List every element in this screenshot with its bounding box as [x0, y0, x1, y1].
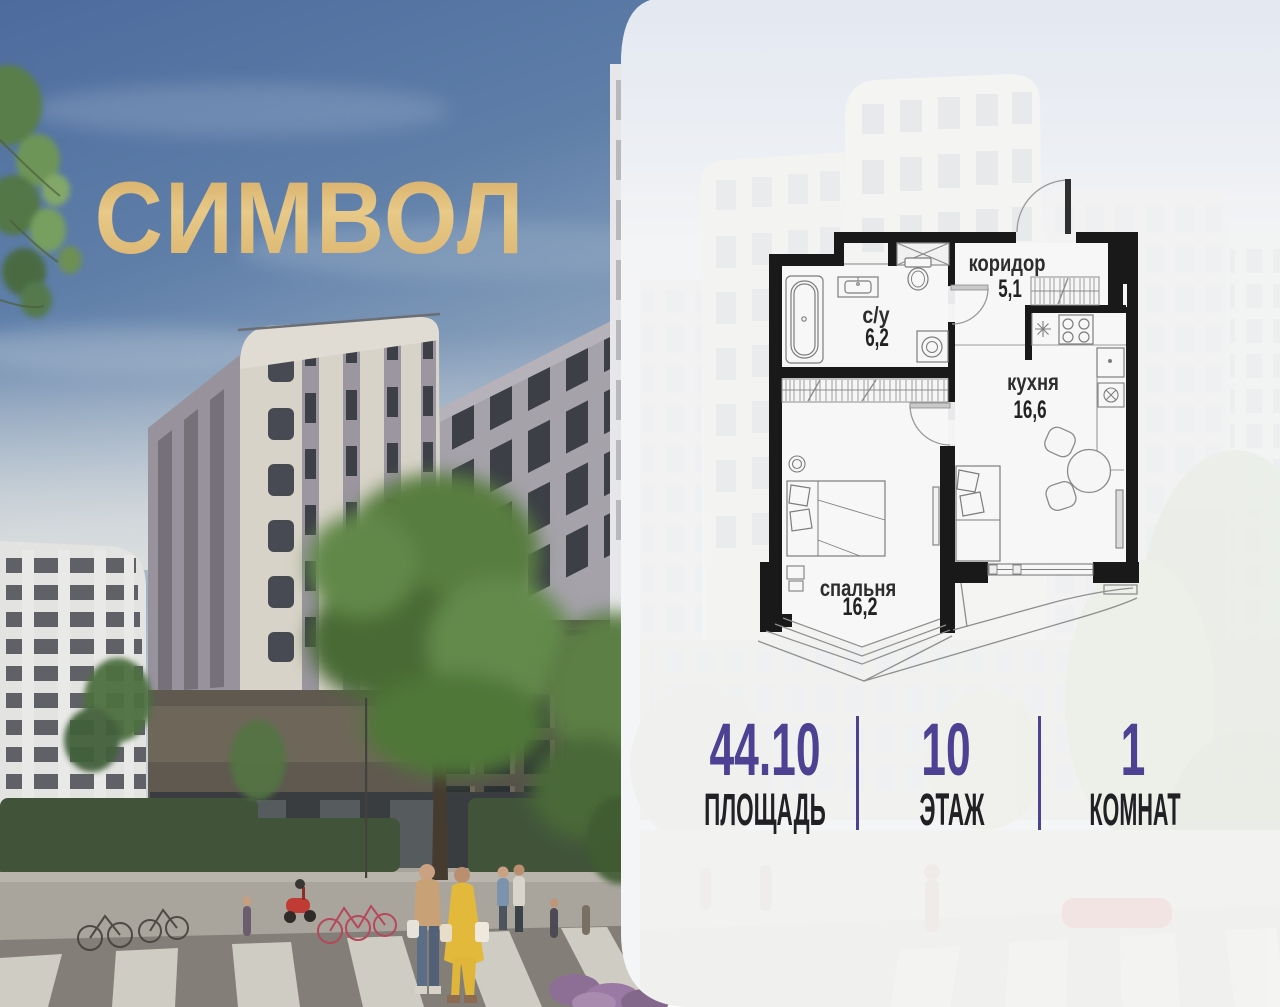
svg-text:44.10: 44.10	[709, 708, 820, 790]
svg-text:16,6: 16,6	[1013, 396, 1046, 424]
svg-text:ПЛОЩАДЬ: ПЛОЩАДЬ	[704, 785, 826, 836]
svg-text:ЭТАЖ: ЭТАЖ	[920, 785, 985, 836]
svg-text:16,2: 16,2	[842, 592, 877, 621]
svg-text:КОМНАТ: КОМНАТ	[1089, 785, 1181, 835]
svg-text:СИМВОЛ: СИМВОЛ	[95, 161, 526, 275]
svg-text:10: 10	[921, 708, 970, 790]
svg-text:6,2: 6,2	[865, 324, 889, 352]
svg-text:коридор: коридор	[969, 251, 1046, 276]
svg-text:кухня: кухня	[1007, 370, 1059, 395]
svg-text:1: 1	[1121, 708, 1146, 790]
svg-text:5,1: 5,1	[998, 275, 1022, 303]
